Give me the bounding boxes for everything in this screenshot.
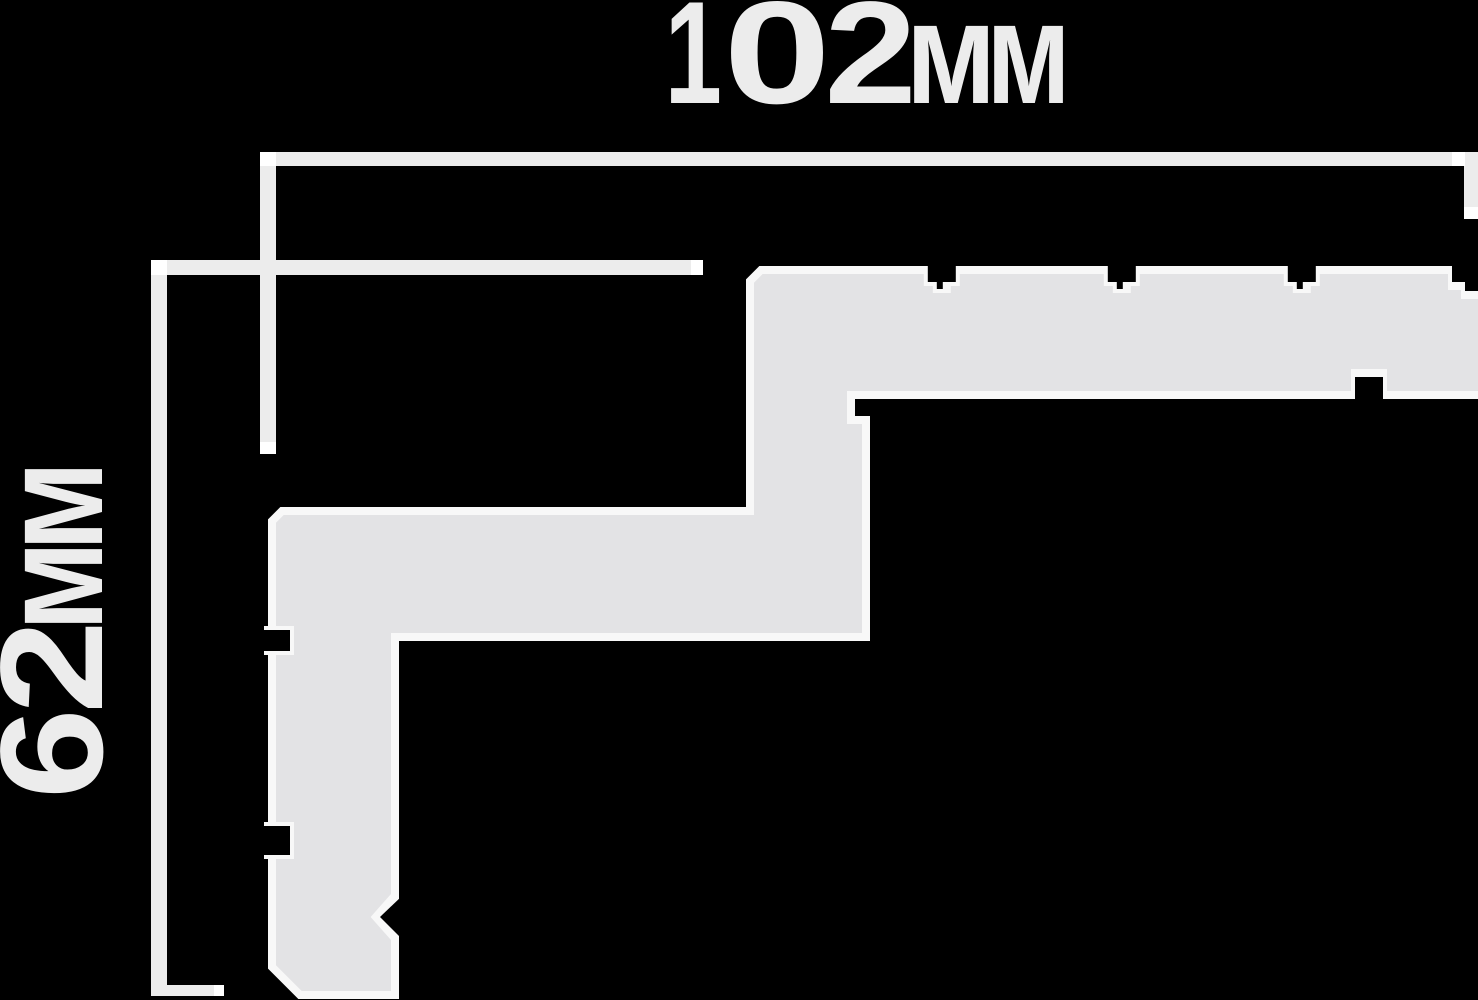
svg-text:2: 2	[824, 0, 917, 135]
svg-text:м: м	[986, 0, 1071, 134]
svg-text:6: 6	[0, 708, 133, 799]
svg-text:м: м	[906, 0, 997, 134]
svg-text:1: 1	[665, 0, 722, 134]
svg-text:2: 2	[0, 620, 133, 714]
svg-text:м: м	[0, 461, 133, 552]
svg-text:м: м	[0, 541, 133, 632]
svg-text:0: 0	[723, 0, 831, 135]
